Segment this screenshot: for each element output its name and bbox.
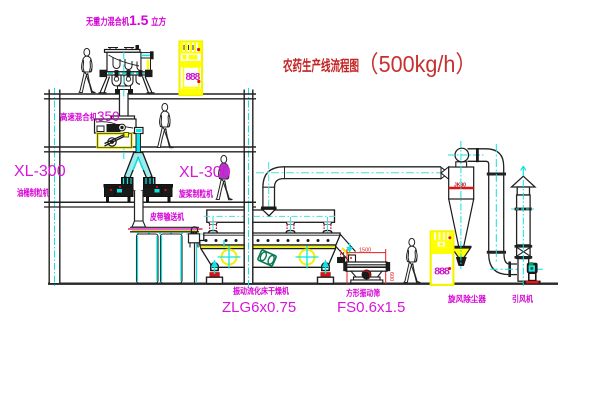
- svg-text:方形振动筛: 方形振动筛: [346, 288, 380, 298]
- svg-text:FS0.6x1.5: FS0.6x1.5: [337, 299, 405, 316]
- svg-text:XL-300: XL-300: [179, 164, 231, 181]
- svg-text:888: 888: [434, 266, 450, 278]
- svg-text:油桶制粒机: 油桶制粒机: [17, 187, 49, 198]
- svg-text:振动流化床干燥机: 振动流化床干燥机: [233, 286, 289, 296]
- svg-text:旋桨制粒机: 旋桨制粒机: [178, 188, 213, 199]
- svg-text:农药生产线流程图: 农药生产线流程图: [282, 57, 359, 75]
- svg-text:皮带输送机: 皮带输送机: [149, 211, 184, 222]
- svg-text:JK80: JK80: [454, 183, 466, 189]
- svg-text:XL-300: XL-300: [14, 163, 66, 180]
- svg-text:引风机: 引风机: [512, 294, 533, 304]
- svg-text:600: 600: [388, 272, 394, 281]
- svg-text:ZLG6x0.75: ZLG6x0.75: [222, 299, 296, 316]
- svg-text:高速混合机350: 高速混合机350: [60, 109, 120, 124]
- svg-text:旋风除尘器: 旋风除尘器: [447, 294, 486, 304]
- svg-text:无重力混合机1.5 立方: 无重力混合机1.5 立方: [85, 12, 166, 28]
- svg-text:（500kg/h）: （500kg/h）: [357, 51, 477, 77]
- svg-text:1500: 1500: [359, 248, 371, 254]
